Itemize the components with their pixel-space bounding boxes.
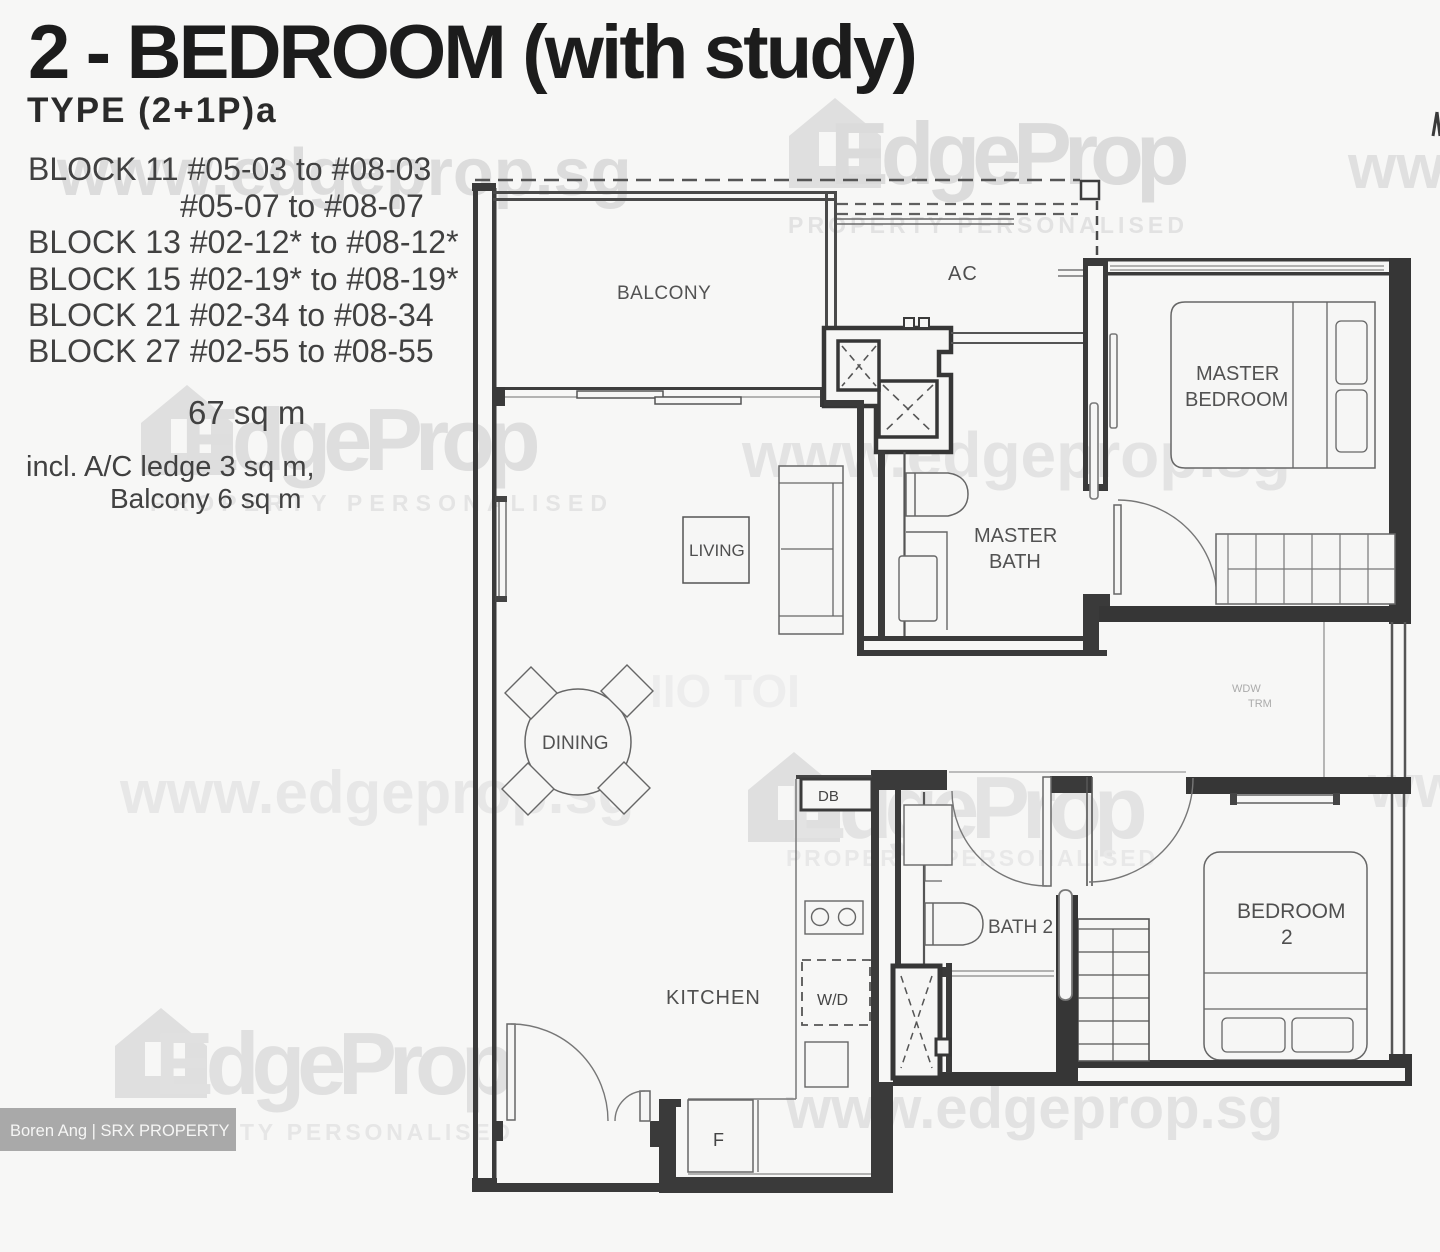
svg-text:BEDROOM: BEDROOM [1185, 389, 1288, 411]
svg-text:EdgeProp: EdgeProp [830, 104, 1187, 203]
svg-text:#05-07 to #08-07: #05-07 to #08-07 [180, 188, 424, 224]
svg-text:DB: DB [818, 788, 839, 805]
svg-text:TRM: TRM [1248, 698, 1272, 710]
svg-text:PROPERTY PERSONALISED: PROPERTY PERSONALISED [788, 212, 1188, 238]
svg-text:TYPE (2+1P)a: TYPE (2+1P)a [27, 91, 278, 130]
svg-text:2: 2 [1281, 926, 1293, 949]
svg-text:LIVING: LIVING [689, 541, 745, 560]
svg-text:BATH 2: BATH 2 [988, 917, 1053, 938]
svg-text:BLOCK 11 #05-03 to #08-03: BLOCK 11 #05-03 to #08-03 [28, 151, 431, 187]
svg-text:WDW: WDW [1232, 683, 1261, 695]
svg-text:BLOCK 13 #02-12* to #08-12*: BLOCK 13 #02-12* to #08-12* [28, 224, 459, 260]
svg-text:KITCHEN: KITCHEN [666, 987, 761, 1009]
svg-text:BLOCK 27 #02-55 to #08-55: BLOCK 27 #02-55 to #08-55 [28, 333, 434, 369]
svg-text:2 - BEDROOM (with study): 2 - BEDROOM (with study) [28, 10, 915, 95]
svg-text:BLOCK 15 #02-19* to #08-19*: BLOCK 15 #02-19* to #08-19* [28, 261, 459, 297]
svg-text:W/D: W/D [817, 992, 848, 1009]
svg-text:MASTER: MASTER [1196, 363, 1279, 385]
svg-text:incl. A/C ledge 3 sq m,: incl. A/C ledge 3 sq m, [26, 451, 315, 483]
svg-text:IIO TOI: IIO TOI [650, 665, 800, 717]
svg-text:www: www [1347, 133, 1440, 202]
svg-text:DINING: DINING [542, 733, 609, 754]
svg-text:EdgeProp: EdgeProp [155, 1014, 512, 1113]
svg-text:BALCONY: BALCONY [617, 283, 711, 304]
svg-text:BEDROOM: BEDROOM [1237, 900, 1346, 923]
svg-text:MASTER: MASTER [974, 525, 1057, 547]
svg-text:Boren Ang | SRX PROPERTY: Boren Ang | SRX PROPERTY [10, 1122, 230, 1140]
svg-text:BATH: BATH [989, 551, 1041, 573]
svg-text:F: F [713, 1130, 724, 1150]
svg-text:Balcony 6 sq m: Balcony 6 sq m [110, 483, 301, 514]
svg-text:AC: AC [948, 263, 978, 285]
svg-text:BLOCK 21 #02-34 to #08-34: BLOCK 21 #02-34 to #08-34 [28, 297, 434, 333]
svg-text:67 sq m: 67 sq m [188, 394, 305, 431]
